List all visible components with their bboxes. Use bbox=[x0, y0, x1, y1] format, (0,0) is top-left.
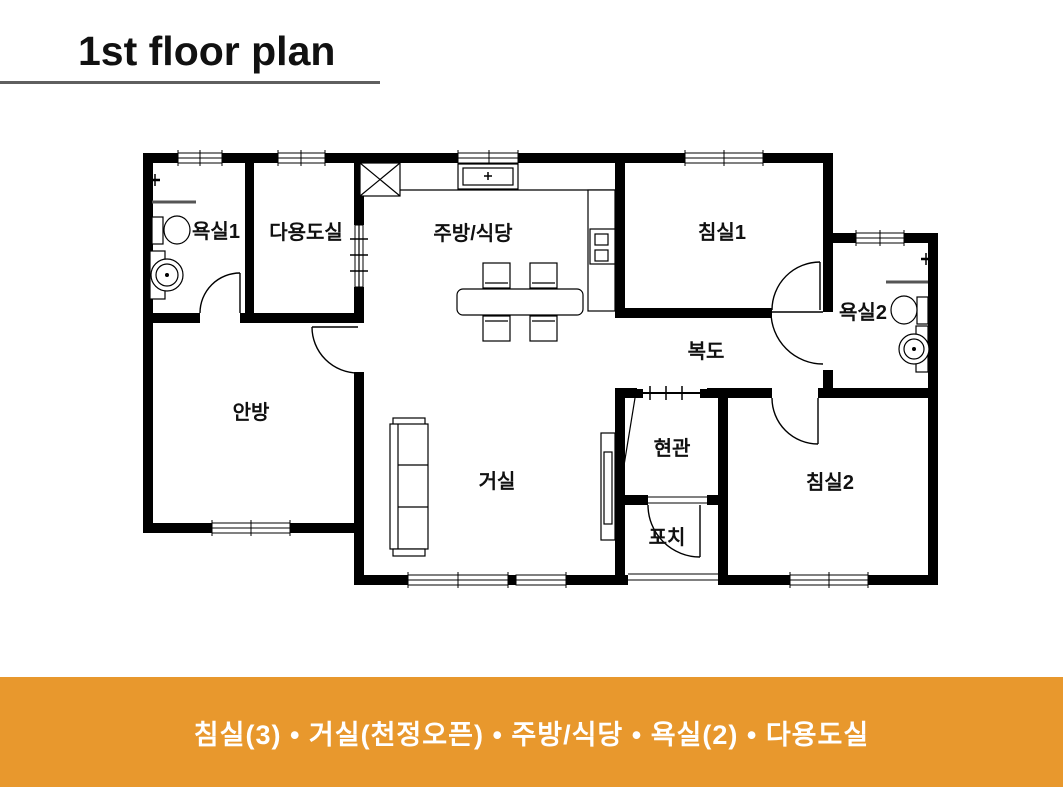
room-label-kitchen: 주방/식당 bbox=[433, 222, 513, 245]
window bbox=[516, 572, 566, 588]
window bbox=[278, 150, 325, 166]
room-label-master: 안방 bbox=[233, 401, 270, 424]
door-bedroom2 bbox=[772, 398, 818, 444]
window bbox=[212, 520, 290, 536]
sofa-icon bbox=[390, 418, 428, 556]
kitchen-fixtures bbox=[360, 163, 615, 341]
door-bath1 bbox=[200, 273, 240, 313]
sink-icon bbox=[150, 251, 183, 299]
pantry-box-icon bbox=[360, 163, 400, 196]
room-label-bath1: 욕실1 bbox=[192, 220, 240, 243]
door-master bbox=[312, 327, 358, 373]
sliding-door-entrance bbox=[634, 386, 709, 400]
toilet-icon bbox=[891, 296, 928, 324]
toilet-icon bbox=[152, 216, 190, 244]
room-label-living: 거실 bbox=[479, 470, 516, 493]
stove-icon bbox=[590, 229, 615, 264]
window bbox=[178, 150, 222, 166]
window bbox=[408, 572, 508, 588]
room-label-utility: 다용도실 bbox=[269, 221, 343, 244]
kitchen-sink-icon bbox=[458, 164, 518, 189]
shoe-cabinet bbox=[601, 433, 615, 540]
doors bbox=[200, 217, 823, 557]
room-label-bedroom1: 침실1 bbox=[698, 221, 746, 244]
room-label-porch: 포치 bbox=[649, 526, 686, 549]
window bbox=[790, 572, 868, 588]
window bbox=[856, 230, 904, 246]
room-label-bath2: 욕실2 bbox=[839, 301, 887, 324]
floor-plan: 욕실1 다용도실 주방/식당 침실1 욕실2 안방 거실 복도 현관 포치 침실… bbox=[0, 0, 1063, 787]
summary-banner-text: 침실(3) • 거실(천정오픈) • 주방/식당 • 욕실(2) • 다용도실 bbox=[194, 713, 869, 752]
summary-banner: 침실(3) • 거실(천정오픈) • 주방/식당 • 욕실(2) • 다용도실 bbox=[0, 677, 1063, 787]
windows bbox=[178, 150, 904, 588]
folding-door-utility bbox=[350, 217, 368, 295]
dining-table-icon bbox=[457, 263, 583, 341]
room-label-hallway: 복도 bbox=[688, 340, 725, 363]
room-label-bedroom2: 침실2 bbox=[806, 471, 854, 494]
window bbox=[685, 150, 763, 166]
sink-icon bbox=[899, 326, 929, 372]
room-label-entrance: 현관 bbox=[654, 437, 691, 460]
walls bbox=[143, 153, 938, 585]
door-bath2 bbox=[771, 312, 823, 364]
door-bedroom1 bbox=[772, 262, 820, 310]
